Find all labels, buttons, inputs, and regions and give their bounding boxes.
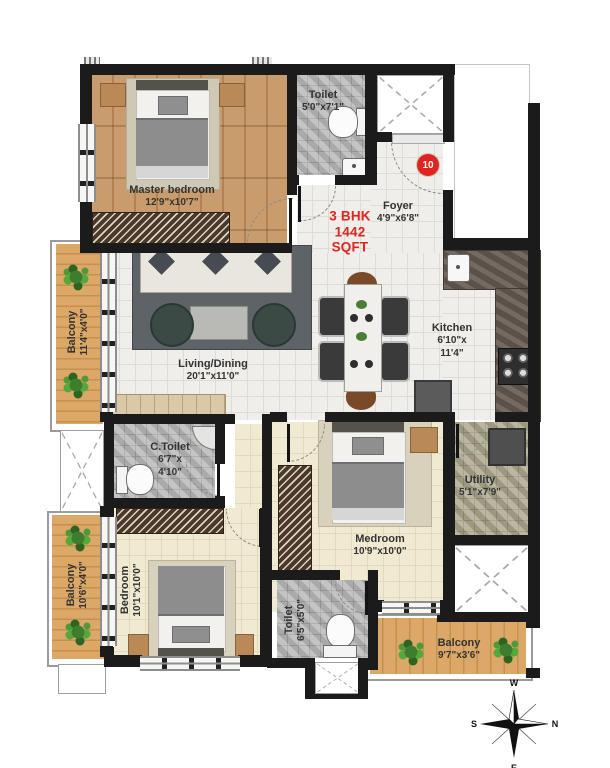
plant-icon [72,532,85,545]
wall-segment [100,646,113,657]
room-name: Foyer [377,200,419,213]
wall-segment [100,506,113,517]
wall-segment [365,64,377,185]
wall-segment [305,694,368,699]
dining-chair [380,296,410,337]
room-name: Living/Dining [178,358,248,371]
service-shaft [315,662,360,694]
nightstand [219,83,245,107]
service-shaft [377,75,445,134]
room-dims: 6'10"x [432,336,472,348]
wall-segment [80,64,455,75]
wc-tank [323,645,357,658]
door-leaf [298,186,301,222]
room-dims: 6'5"x5'0" [297,599,309,641]
room-name: Utility [459,474,501,487]
room-dims: 4'10" [150,467,190,479]
compass-rose-icon: W N S E [470,678,562,768]
accent-chair [252,303,296,347]
window [100,517,117,646]
wall-segment [368,570,378,670]
wall-segment [267,570,340,580]
wall-segment [526,618,540,628]
wall-segment [270,412,287,422]
wc-toilet [326,614,355,648]
room-label-toilet-bottom: Toilet 6'5"x5'0" [283,599,309,641]
pillow [352,437,384,455]
plant-icon [405,646,418,659]
room-label-balcony-bottom-left: Balcony 10'6"x4'0" [65,561,91,609]
wardrobe [278,465,312,575]
sink-drain [456,265,460,269]
wall-segment [453,535,528,545]
window [382,601,440,615]
wall-segment [443,64,454,142]
service-shaft [60,430,104,512]
wall-segment [287,175,299,185]
wall-segment [528,240,540,420]
room-name: Bedroom [119,563,132,616]
room-dims: 5'0"x7'1" [302,103,344,115]
room-dims: 4'9"x6'8" [377,214,419,226]
window [140,656,240,671]
door-leaf [289,198,292,244]
wall-segment [443,238,540,250]
room-dims: 9'7"x3'6" [438,651,481,663]
compass-w: W [510,678,519,688]
wall-segment [100,412,113,422]
wardrobe [92,212,230,245]
compass-n: N [552,719,559,729]
floor-plan: Master bedroom 12'9"x10'7" Toilet 5'0"x7… [0,0,610,768]
table-plant [356,332,367,341]
room-label-master-bedroom: Master bedroom 12'9"x10'7" [129,184,215,210]
door-leaf [217,462,220,497]
wall-segment [437,612,540,622]
plant-icon [70,271,83,284]
door-leaf [456,424,459,458]
nightstand [410,427,438,453]
wall-segment [215,424,225,464]
compass-s: S [471,719,477,729]
room-label-kitchen: Kitchen 6'10"x 11'4" [432,322,472,360]
room-dims: 11'4"x4'0" [80,308,92,355]
room-dims: 20'1"x11'0" [178,372,248,384]
wardrobe [116,508,224,534]
wall-segment [325,412,455,422]
wall-segment [365,132,392,142]
fridge [414,380,452,416]
basin-drain [352,164,356,168]
wall-segment [104,424,114,508]
plate [350,360,358,368]
wall-segment [265,498,272,508]
blanket [332,462,404,510]
wall-segment [528,103,540,240]
wall-segment [443,412,455,612]
wall-segment [260,508,272,658]
plate [365,360,373,368]
room-label-utility: Utility 5'1"x7'9" [459,474,501,500]
blanket [136,118,208,168]
room-label-balcony-bottom-right: Balcony 9'7"x3'6" [438,637,481,663]
wall-segment [104,498,225,508]
room-dims: 10'1"x10'0" [133,563,145,616]
wall-segment [443,190,453,243]
room-name: Balcony [65,561,78,609]
room-label-bedroom: Bedroom 10'1"x10'0" [119,563,145,616]
bed-headboard [332,422,404,432]
plant-icon [72,626,85,639]
window [100,253,117,412]
room-label-c-toilet: C.Toilet 6'7"x 4'10" [150,441,190,479]
console-cabinet [112,394,226,416]
room-label-foyer: Foyer 4'9"x6'8" [377,200,419,226]
plan-title: 3 BHK 1442 SQFT [329,209,371,256]
entrance-threshold [392,134,445,144]
wall-segment [440,600,455,612]
wall-segment [528,412,540,618]
room-name: Balcony [438,637,481,650]
plant-icon [500,644,513,657]
wall-segment [104,414,235,424]
blanket-fold [136,166,208,178]
washing-machine [488,428,526,466]
plan-title-line: SQFT [329,240,371,256]
accent-chair [150,303,194,347]
plate [350,314,358,322]
door-leaf [287,424,290,462]
room-label-medroom: Medroom 10'9"x10'0" [353,533,406,559]
wall-segment [305,658,315,698]
bed-headboard [158,648,224,656]
room-name: C.Toilet [150,441,190,454]
window [78,124,96,202]
blanket-fold [332,508,404,520]
compass-e: E [511,763,517,768]
room-name: Kitchen [432,322,472,335]
wall-segment [262,414,272,508]
room-dims: 6'7"x [150,455,190,467]
dining-chair [380,341,410,382]
wall-segment [526,668,540,678]
room-dims: 11'4" [432,348,472,360]
plan-title-line: 3 BHK [329,209,371,225]
room-dims: 5'1"x7'9" [459,488,501,500]
room-name: Master bedroom [129,184,215,197]
room-label-toilet-top: Toilet 5'0"x7'1" [302,89,344,115]
unit-number-badge: 10 [417,154,439,176]
room-dims: 10'9"x10'0" [353,547,406,559]
wall-segment [100,243,113,253]
room-name: Medroom [353,533,406,546]
pillow [158,96,188,115]
blanket [158,566,224,616]
bed-headboard [136,80,208,90]
table-plant [356,300,367,309]
room-dims: 12'9"x10'7" [129,198,215,210]
wall-segment [358,658,368,698]
coffee-table [190,306,248,340]
plate [365,314,373,322]
pillow [172,626,210,643]
room-label-living-dining: Living/Dining 20'1"x11'0" [178,358,248,384]
service-shaft [453,545,530,614]
room-label-balcony-top-left: Balcony 11'4"x4'0" [66,308,92,355]
room-name: Toilet [302,89,344,102]
plan-title-line: 1442 [329,224,371,240]
room-name: Toilet [283,599,296,641]
service-shaft [58,664,106,694]
nightstand [100,83,126,107]
room-name: Balcony [66,308,79,355]
room-dims: 10'6"x4'0" [79,561,91,609]
wall-segment [335,175,377,185]
plant-icon [70,379,83,392]
corridor-floor [235,424,262,508]
corridor-outline [454,64,530,242]
wall-segment [80,64,92,126]
